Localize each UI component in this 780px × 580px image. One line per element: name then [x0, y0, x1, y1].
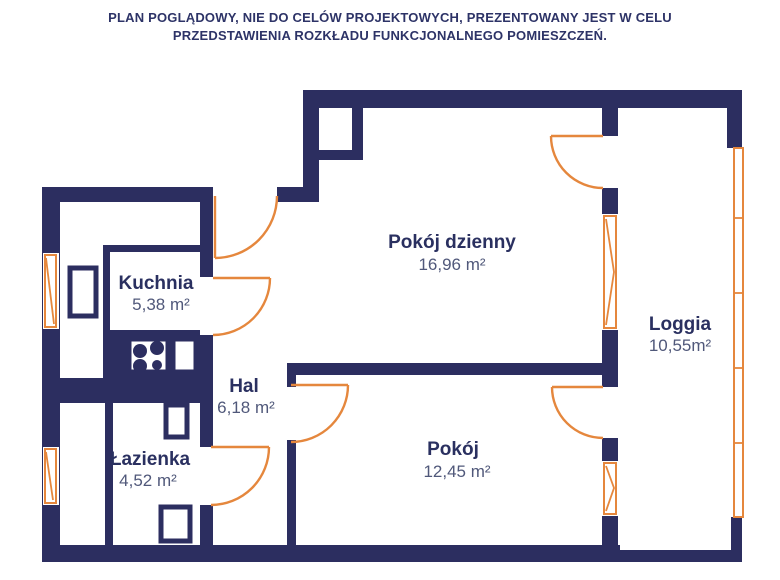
wall-kitchen-hall-upper: [200, 187, 213, 277]
bathroom-washer-fixture: [166, 405, 187, 437]
room-label-pokoj-dzienny: Pokój dzienny: [388, 232, 516, 253]
wall-bottom-outer: [42, 545, 620, 562]
livingroom-loggia-door: [551, 136, 603, 188]
wall-loggia-seg3: [602, 330, 618, 387]
stove-burner-icon: [133, 359, 147, 373]
wall-loggia-bottom: [602, 550, 742, 562]
room-label-kuchnia: Kuchnia: [119, 273, 194, 294]
room-area-lazienka: 4,52 m²: [119, 471, 177, 490]
wall-kitchen-inner-left: [103, 245, 110, 337]
entrance-door: [215, 196, 277, 258]
kitchen-door-swing: [213, 278, 270, 335]
entrance-door-swing: [215, 196, 277, 258]
wall-top: [303, 90, 742, 108]
wall-left-outer: [42, 187, 60, 562]
room-door-swing: [291, 385, 348, 442]
wall-bathroom-divider: [105, 403, 113, 545]
walls: [42, 90, 742, 562]
wall-shaft-bottom: [319, 150, 363, 160]
stove-burner-icon: [150, 341, 164, 355]
room-area-hal: 6,18 m²: [217, 398, 275, 417]
room-door: [291, 385, 348, 442]
room-area-pokoj-dzienny: 16,96 m²: [418, 255, 485, 274]
stove-burner-icon: [152, 360, 162, 370]
wall-kitchen-inner-top: [103, 245, 200, 252]
room-loggia-door-swing: [552, 387, 603, 438]
wall-hall-room-lower: [287, 440, 296, 545]
wall-shaft-left: [303, 90, 319, 196]
loggia-railing: [734, 148, 743, 517]
livingroom-loggia-door-swing: [551, 136, 603, 188]
doors: [211, 136, 603, 505]
room-loggia-door: [552, 387, 603, 438]
room-label-lazienka: Łazienka: [110, 449, 191, 470]
wall-kitchen-bathroom: [42, 378, 213, 403]
room-area-kuchnia: 5,38 m²: [132, 295, 190, 314]
wall-loggia-seg2: [602, 188, 618, 214]
wall-loggia-corner-bottom: [731, 517, 742, 562]
kitchen-door: [213, 278, 270, 335]
stove-burner-icon: [133, 344, 147, 358]
wall-loggia-seg4: [602, 438, 618, 461]
wall-kitchen-hall-lower: [200, 505, 213, 545]
room-area-loggia: 10,55m²: [649, 336, 712, 355]
floor-plan-drawing: Kuchnia 5,38 m² Pokój dzienny 16,96 m² H…: [0, 0, 780, 580]
room-label-pokoj: Pokój: [427, 439, 479, 460]
wall-kitchen-top: [42, 187, 212, 202]
room-label-hal: Hal: [229, 376, 259, 397]
wall-loggia-seg5: [602, 516, 618, 562]
sink-fixture: [173, 339, 196, 372]
room-area-pokoj: 12,45 m²: [423, 462, 490, 481]
bathroom-door: [211, 447, 269, 505]
kitchen-fridge-fixture: [70, 268, 96, 316]
wall-loggia-seg1: [602, 108, 618, 136]
floor-plan-page: PLAN POGLĄDOWY, NIE DO CELÓW PROJEKTOWYC…: [0, 0, 780, 580]
room-label-loggia: Loggia: [649, 314, 712, 335]
bathroom-door-swing: [211, 447, 269, 505]
bathroom-toilet-fixture: [161, 507, 190, 541]
wall-hall-top-stub: [277, 187, 319, 202]
wall-livingroom-room: [287, 363, 618, 375]
wall-loggia-corner-top: [727, 108, 742, 148]
